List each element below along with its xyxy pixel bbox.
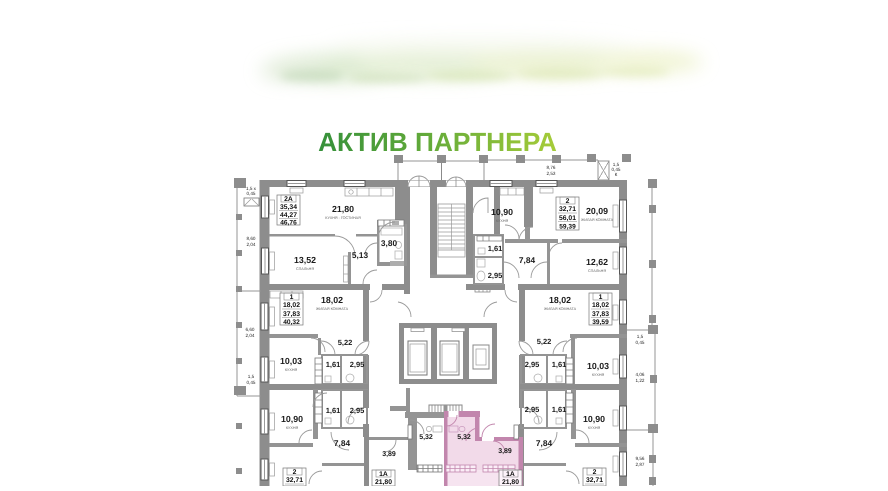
svg-text:21,80: 21,80 <box>502 479 519 486</box>
svg-text:КУХНЯ: КУХНЯ <box>496 219 509 223</box>
svg-text:1,5: 1,5 <box>248 374 255 379</box>
svg-text:1,61: 1,61 <box>326 406 341 415</box>
svg-text:2: 2 <box>293 469 297 476</box>
svg-text:КУХНЯ: КУХНЯ <box>285 368 298 372</box>
svg-text:2,95: 2,95 <box>350 406 365 415</box>
svg-text:56,01: 56,01 <box>559 215 576 222</box>
svg-text:1: 1 <box>290 294 294 301</box>
svg-text:59,39: 59,39 <box>559 224 576 231</box>
svg-text:4,06: 4,06 <box>636 372 645 377</box>
svg-text:0,45: 0,45 <box>636 340 645 345</box>
svg-text:32,71: 32,71 <box>559 206 576 213</box>
svg-text:3,89: 3,89 <box>382 451 396 458</box>
svg-text:К: К <box>615 172 618 177</box>
svg-text:КУХНЯ: КУХНЯ <box>286 426 299 430</box>
svg-text:18,02: 18,02 <box>592 302 609 309</box>
svg-text:37,83: 37,83 <box>592 311 609 318</box>
svg-text:3,89: 3,89 <box>498 448 512 455</box>
svg-text:12,62: 12,62 <box>586 257 608 267</box>
svg-text:5,32: 5,32 <box>457 434 471 441</box>
svg-text:1,61: 1,61 <box>552 360 567 369</box>
svg-text:21,80: 21,80 <box>332 204 354 214</box>
svg-text:40,32: 40,32 <box>283 319 300 326</box>
svg-text:1: 1 <box>599 294 603 301</box>
svg-text:44,27: 44,27 <box>280 212 297 219</box>
svg-text:9,56: 9,56 <box>636 456 645 461</box>
svg-text:2,04: 2,04 <box>247 242 256 247</box>
svg-text:8,76: 8,76 <box>547 165 556 170</box>
svg-text:37,83: 37,83 <box>283 311 300 318</box>
svg-text:1,61: 1,61 <box>552 405 567 414</box>
svg-text:0,45: 0,45 <box>247 380 256 385</box>
svg-text:2,87: 2,87 <box>636 462 645 467</box>
svg-text:КУХНЯ: КУХНЯ <box>592 373 605 377</box>
svg-text:СПАЛЬНЯ: СПАЛЬНЯ <box>296 267 314 271</box>
svg-text:18,02: 18,02 <box>549 295 571 305</box>
svg-text:7,84: 7,84 <box>334 438 351 448</box>
svg-text:2,95: 2,95 <box>525 360 540 369</box>
svg-text:СПАЛЬНЯ: СПАЛЬНЯ <box>588 269 606 273</box>
svg-text:10,03: 10,03 <box>280 356 302 366</box>
svg-text:10,90: 10,90 <box>281 414 303 424</box>
svg-text:КУХНЯ - ГОСТИНАЯ: КУХНЯ - ГОСТИНАЯ <box>325 216 361 220</box>
svg-text:5,32: 5,32 <box>419 434 433 441</box>
svg-text:ЖИЛАЯ КОМНАТА: ЖИЛАЯ КОМНАТА <box>544 307 577 311</box>
svg-text:18,02: 18,02 <box>283 302 300 309</box>
svg-text:0,45: 0,45 <box>247 191 256 196</box>
svg-text:35,34: 35,34 <box>280 204 297 211</box>
svg-text:46,76: 46,76 <box>280 220 297 227</box>
svg-text:21,80: 21,80 <box>375 479 392 486</box>
svg-text:3,80: 3,80 <box>381 238 398 248</box>
svg-text:ЖИЛАЯ КОМНАТА: ЖИЛАЯ КОМНАТА <box>581 218 614 222</box>
svg-text:39,59: 39,59 <box>592 319 609 326</box>
svg-text:КУХНЯ: КУХНЯ <box>588 426 601 430</box>
svg-text:5,22: 5,22 <box>537 337 552 346</box>
svg-text:АКТИВ ПАРТНЕРА: АКТИВ ПАРТНЕРА <box>318 127 557 157</box>
svg-text:1А: 1А <box>379 471 388 478</box>
svg-text:1А: 1А <box>506 471 515 478</box>
svg-text:7,84: 7,84 <box>536 438 553 448</box>
svg-text:6,60: 6,60 <box>246 327 255 332</box>
svg-text:2,95: 2,95 <box>525 405 540 414</box>
svg-text:8,60: 8,60 <box>247 236 256 241</box>
svg-text:32,71: 32,71 <box>586 477 603 484</box>
svg-text:10,03: 10,03 <box>587 361 609 371</box>
svg-text:2,04: 2,04 <box>246 333 255 338</box>
svg-text:10,90: 10,90 <box>583 414 605 424</box>
svg-text:1,5: 1,5 <box>637 334 644 339</box>
svg-text:18,02: 18,02 <box>321 295 343 305</box>
svg-text:2,95: 2,95 <box>488 271 503 280</box>
svg-text:32,71: 32,71 <box>286 477 303 484</box>
svg-text:1,61: 1,61 <box>488 244 503 253</box>
svg-text:2,53: 2,53 <box>547 171 556 176</box>
svg-text:ЖИЛАЯ КОМНАТА: ЖИЛАЯ КОМНАТА <box>316 307 349 311</box>
svg-text:5,13: 5,13 <box>352 250 369 260</box>
svg-text:10,90: 10,90 <box>491 207 513 217</box>
svg-text:5,22: 5,22 <box>338 338 353 347</box>
svg-text:7,84: 7,84 <box>519 255 536 265</box>
svg-text:2А: 2А <box>284 196 293 203</box>
svg-text:2,95: 2,95 <box>350 360 365 369</box>
svg-text:2: 2 <box>566 198 570 205</box>
svg-text:13,52: 13,52 <box>294 255 316 265</box>
svg-text:2: 2 <box>593 469 597 476</box>
svg-text:20,09: 20,09 <box>586 206 608 216</box>
svg-text:1,61: 1,61 <box>326 360 341 369</box>
svg-text:1,22: 1,22 <box>636 378 645 383</box>
